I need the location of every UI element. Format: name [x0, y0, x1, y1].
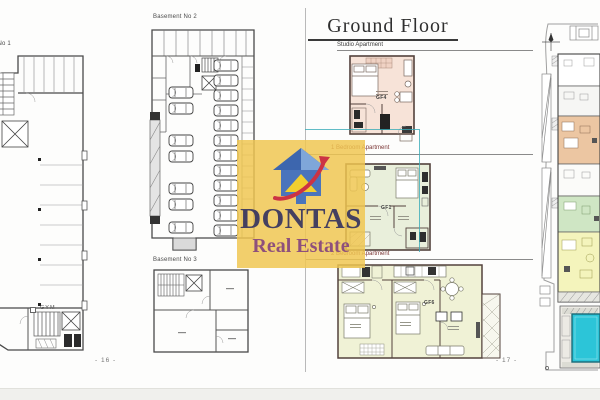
watermark-subtitle: Real Estate: [252, 236, 349, 256]
elevator-icon: [62, 312, 80, 330]
watermark: DONTAS Real Estate: [237, 140, 365, 268]
left-page-number: - 16 -: [95, 357, 116, 364]
hatch-strip: [558, 292, 600, 302]
tv: [476, 322, 480, 338]
bed: [352, 64, 378, 96]
floorplan-spread: Basement No 1: [0, 0, 600, 400]
basement2-label: Basement No 2: [153, 14, 197, 20]
ramp: [540, 74, 551, 306]
studio-section-rule: [337, 50, 533, 51]
compass-icon: [542, 33, 560, 51]
ramp: [150, 112, 160, 224]
stairs-icon: [158, 274, 184, 296]
right-page-number: - 17 -: [496, 357, 517, 364]
dontas-house-logo-icon: [269, 144, 333, 204]
studio-section-label: Studio Apartment: [337, 42, 383, 48]
stairs-icon: [34, 312, 60, 336]
one-bed-unit-code: GF1: [381, 205, 392, 211]
page-title: Ground Floor: [318, 15, 458, 38]
basement1-label: Basement No 1: [0, 41, 11, 47]
studio-unit-code: GF4: [376, 95, 387, 101]
elevator-icon: [186, 275, 202, 291]
stairs-icon: [0, 73, 14, 115]
balcony-hatch: [552, 56, 558, 208]
gym-label: GYM: [40, 306, 56, 312]
gym-marker: [30, 307, 36, 313]
balcony: [482, 294, 500, 358]
site-unit-green: [558, 196, 600, 232]
rug: [360, 344, 384, 355]
basement3-plan: [150, 266, 252, 358]
kitchen-counter: [394, 266, 446, 277]
sofa: [426, 346, 464, 355]
watermark-name: DONTAS: [240, 205, 362, 234]
elevator-icon: [2, 121, 28, 147]
title-underline: [308, 39, 458, 41]
basement3-label: Basement No 3: [153, 257, 197, 263]
structural-columns: [0, 158, 41, 306]
site-key-plan: [534, 18, 600, 374]
bottom-band: [0, 388, 600, 400]
two-bedroom-plan: [336, 262, 504, 362]
two-bed-unit-code: GF6: [424, 300, 435, 306]
swimming-pool: [560, 306, 600, 368]
